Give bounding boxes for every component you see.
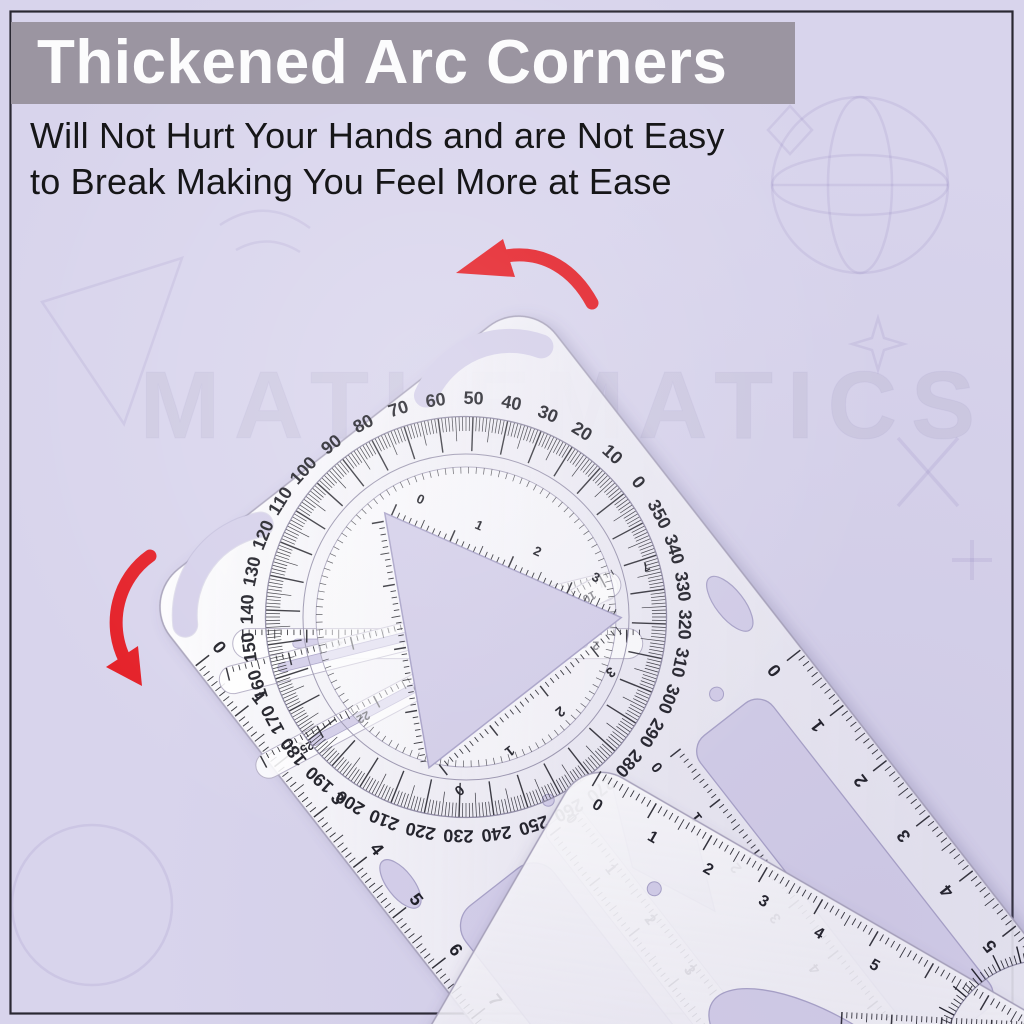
subtitle-line-2: to Break Making You Feel More at Ease [30,159,725,205]
degree-label: 240 [480,822,513,846]
arc-squiggle-icon [220,211,310,252]
degree-label: 60 [424,389,447,412]
ruler-tick [841,1012,842,1024]
rotate-counterclockwise-arrow-icon [456,239,592,303]
rotate-downward-arrow-icon [106,556,150,686]
degree-label: 230 [443,825,474,846]
degree-label: 330 [671,570,695,603]
top-arrow-shaft [506,255,592,303]
degree-label: 320 [674,609,695,640]
subtitle-line-1: Will Not Hurt Your Hands and are Not Eas… [30,113,725,159]
headline-banner: Thickened Arc Corners [11,22,795,104]
ruler-tick [891,1015,892,1024]
left-arrow-shaft [116,556,150,660]
degree-label: 150 [237,631,261,664]
degree-label: 50 [463,388,484,409]
circle-doodle-icon [12,825,172,985]
subtitle-block: Will Not Hurt Your Hands and are Not Eas… [30,113,725,205]
ruler-tick [941,1017,942,1024]
top-arrow-head [456,239,515,277]
degree-label: 40 [500,391,524,415]
ruler-tick [991,1020,992,1024]
degree-label: 140 [237,594,258,625]
banner-title: Thickened Arc Corners [37,32,727,94]
product-marketing-image: MATHEMATICS 0123456701234560123450123421… [0,0,1024,1024]
